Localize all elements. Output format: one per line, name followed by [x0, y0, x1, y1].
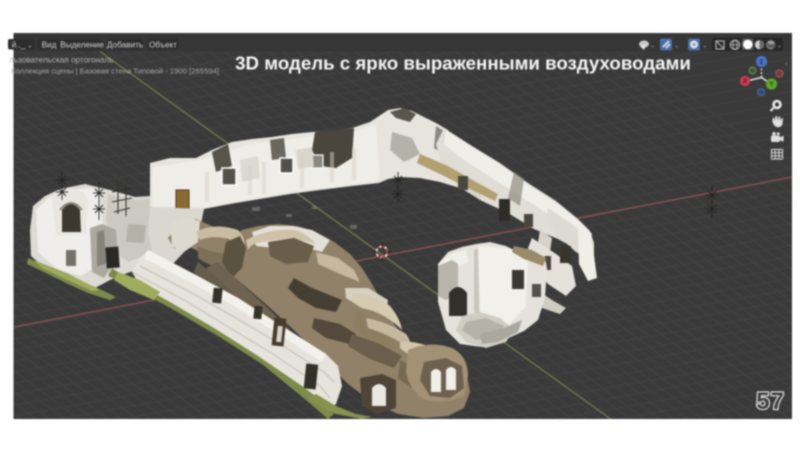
svg-text:Добавить: Добавить [107, 40, 143, 49]
svg-text:Y: Y [769, 82, 773, 88]
svg-text:⌄: ⌄ [27, 42, 33, 49]
svg-text:⌄: ⌄ [777, 43, 782, 50]
svg-text:X: X [743, 79, 747, 85]
svg-text:й.._: й.._ [12, 40, 26, 49]
svg-text:Вид: Вид [42, 40, 57, 49]
svg-text:⌄: ⌄ [650, 43, 655, 50]
svg-text:⌄: ⌄ [702, 43, 707, 50]
svg-text:3D модель с ярко выраженными в: 3D модель с ярко выраженными воздуховода… [235, 53, 691, 74]
svg-text:Z: Z [760, 60, 764, 66]
svg-text:57: 57 [756, 388, 785, 415]
svg-text:льзовательская ортогональ: льзовательская ортогональ [9, 56, 114, 65]
svg-text:Коллекция сцены | Базовая стен: Коллекция сцены | Базовая стена Типовой … [11, 67, 219, 76]
svg-text:⌄: ⌄ [674, 43, 679, 50]
svg-text:Объект: Объект [149, 40, 177, 49]
svg-text:‹: ‹ [785, 59, 788, 68]
svg-text:Выделение: Выделение [60, 40, 104, 49]
